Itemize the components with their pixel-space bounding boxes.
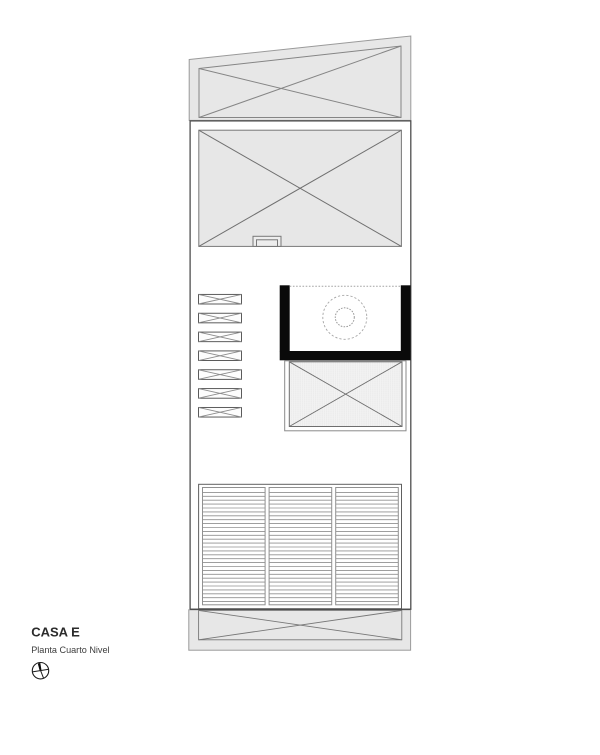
- svg-text:Planta Cuarto Nivel: Planta Cuarto Nivel: [31, 645, 109, 655]
- svg-text:CASA E: CASA E: [31, 625, 80, 640]
